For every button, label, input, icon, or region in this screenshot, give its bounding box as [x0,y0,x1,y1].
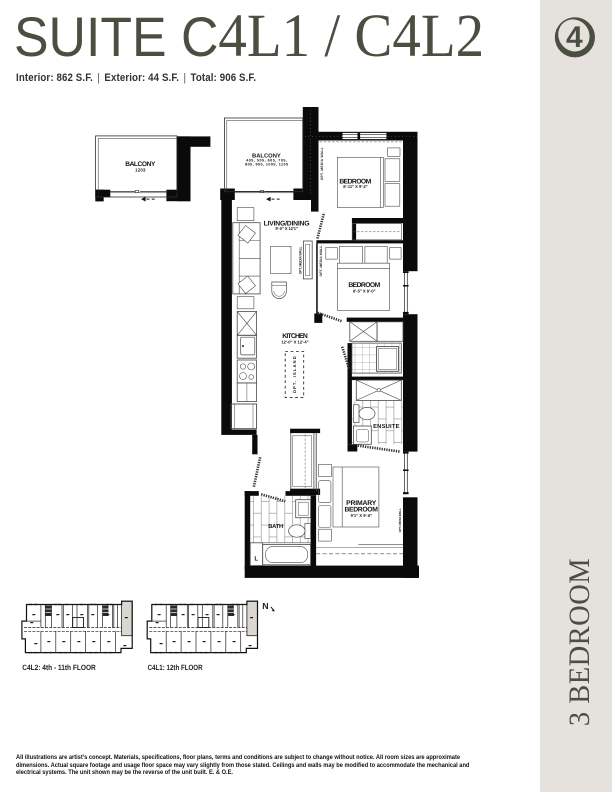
svg-text:OPT. MEDIA WALL: OPT. MEDIA WALL [299,246,303,274]
svg-text:OPT. ISLAND: OPT. ISLAND [292,356,297,393]
svg-text:4: 4 [566,21,583,54]
svg-text:N: N [262,601,268,611]
svg-text:L: L [254,555,258,562]
svg-text:OPT. MEDIA WALL: OPT. MEDIA WALL [320,147,324,180]
svg-text:805, 905, 1005, 1105: 805, 905, 1005, 1105 [245,163,288,167]
svg-text:OPT. MEDIA WALL: OPT. MEDIA WALL [319,246,323,277]
svg-text:9'1" X 9'-6": 9'1" X 9'-6" [351,513,373,518]
svg-text:8'-11" X 9'-2": 8'-11" X 9'-2" [343,184,368,189]
svg-text:C4L1: 12th FLOOR: C4L1: 12th FLOOR [148,663,203,672]
svg-text:OPT. MEDIA WALL: OPT. MEDIA WALL [398,508,402,532]
svg-text:12'-0" X 12'-4": 12'-0" X 12'-4" [281,340,308,345]
svg-text:ENSUITE: ENSUITE [373,423,400,430]
svg-text:9'-0" X 12'1": 9'-0" X 12'1" [275,226,298,231]
svg-text:8'-5" X 8'-0": 8'-5" X 8'-0" [353,288,376,293]
svg-text:C4L2: 4th - 11th FLOOR: C4L2: 4th - 11th FLOOR [22,663,96,672]
svg-text:BATH: BATH [268,524,283,530]
svg-text:1203: 1203 [135,168,146,173]
